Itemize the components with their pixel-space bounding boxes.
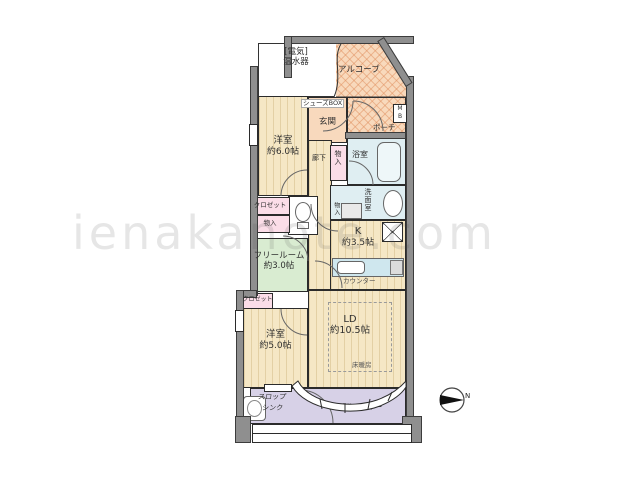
balcony-railing [252, 424, 412, 443]
bedroom1-size: 約6.0帖 [258, 147, 308, 157]
slop-sink-label-1: スロップ [257, 393, 286, 401]
bathroom-label: 浴室 [352, 150, 368, 159]
mb-line2: B [393, 113, 407, 121]
wall-top [284, 36, 414, 44]
stove-icon [390, 260, 403, 275]
bedroom1-name: 洋室 [258, 136, 308, 147]
meter-box-label: M B [393, 105, 407, 121]
window-left-lower [235, 310, 244, 332]
free-room-size: 約3.0帖 [250, 262, 308, 272]
closet-lower-label: クロゼット [242, 297, 273, 304]
mb-line1: M [393, 105, 407, 113]
compass-needle [440, 395, 464, 405]
watermark-text: ienakanote.com [72, 206, 497, 260]
bedroom2-size: 約5.0帖 [243, 341, 308, 351]
hall-storage-label: 物入 [334, 150, 342, 166]
window-bedroom2-balcony [264, 384, 292, 392]
porch-label: ポーチ [373, 124, 396, 133]
ld-name: LD [308, 314, 392, 326]
ld-size: 約10.5帖 [308, 326, 392, 337]
railing-line [253, 433, 411, 434]
bedroom2-name: 洋室 [243, 330, 308, 341]
entrance-label: 玄関 [308, 118, 347, 128]
alcove-label: アルコーブ [338, 66, 380, 76]
hallway-label: 廊下 [312, 154, 326, 162]
bedroom2-label: 洋室 約5.0帖 [243, 330, 308, 351]
bedroom1-label: 洋室 約6.0帖 [258, 136, 308, 157]
floorplan-canvas: [電気] 温水器 アルコーブ シューズBOX 玄関 ポーチ M B 洋室 約6.… [0, 0, 640, 480]
water-heater-line2: 温水器 [262, 58, 330, 68]
compass-icon [440, 388, 464, 412]
counter-label: カウンター [343, 278, 376, 285]
kitchen-sink-icon [337, 261, 365, 274]
bathtub-icon [377, 142, 401, 182]
living-dining-label: LD 約10.5帖 [308, 314, 392, 336]
wall-block-bottom-left [235, 416, 251, 443]
water-heater-label: [電気] 温水器 [262, 48, 330, 68]
compass-north-label: N [465, 392, 470, 400]
wall-porch-bath [345, 132, 406, 139]
floor-heating-label: 床暖房 [352, 362, 372, 369]
shoes-box-label: シューズBOX [301, 99, 344, 108]
slop-sink-basin-icon [247, 400, 262, 417]
slop-sink-label-2: シンク [261, 404, 283, 412]
balcony-label: バルコニー [336, 404, 383, 414]
window-left-upper [249, 124, 258, 146]
